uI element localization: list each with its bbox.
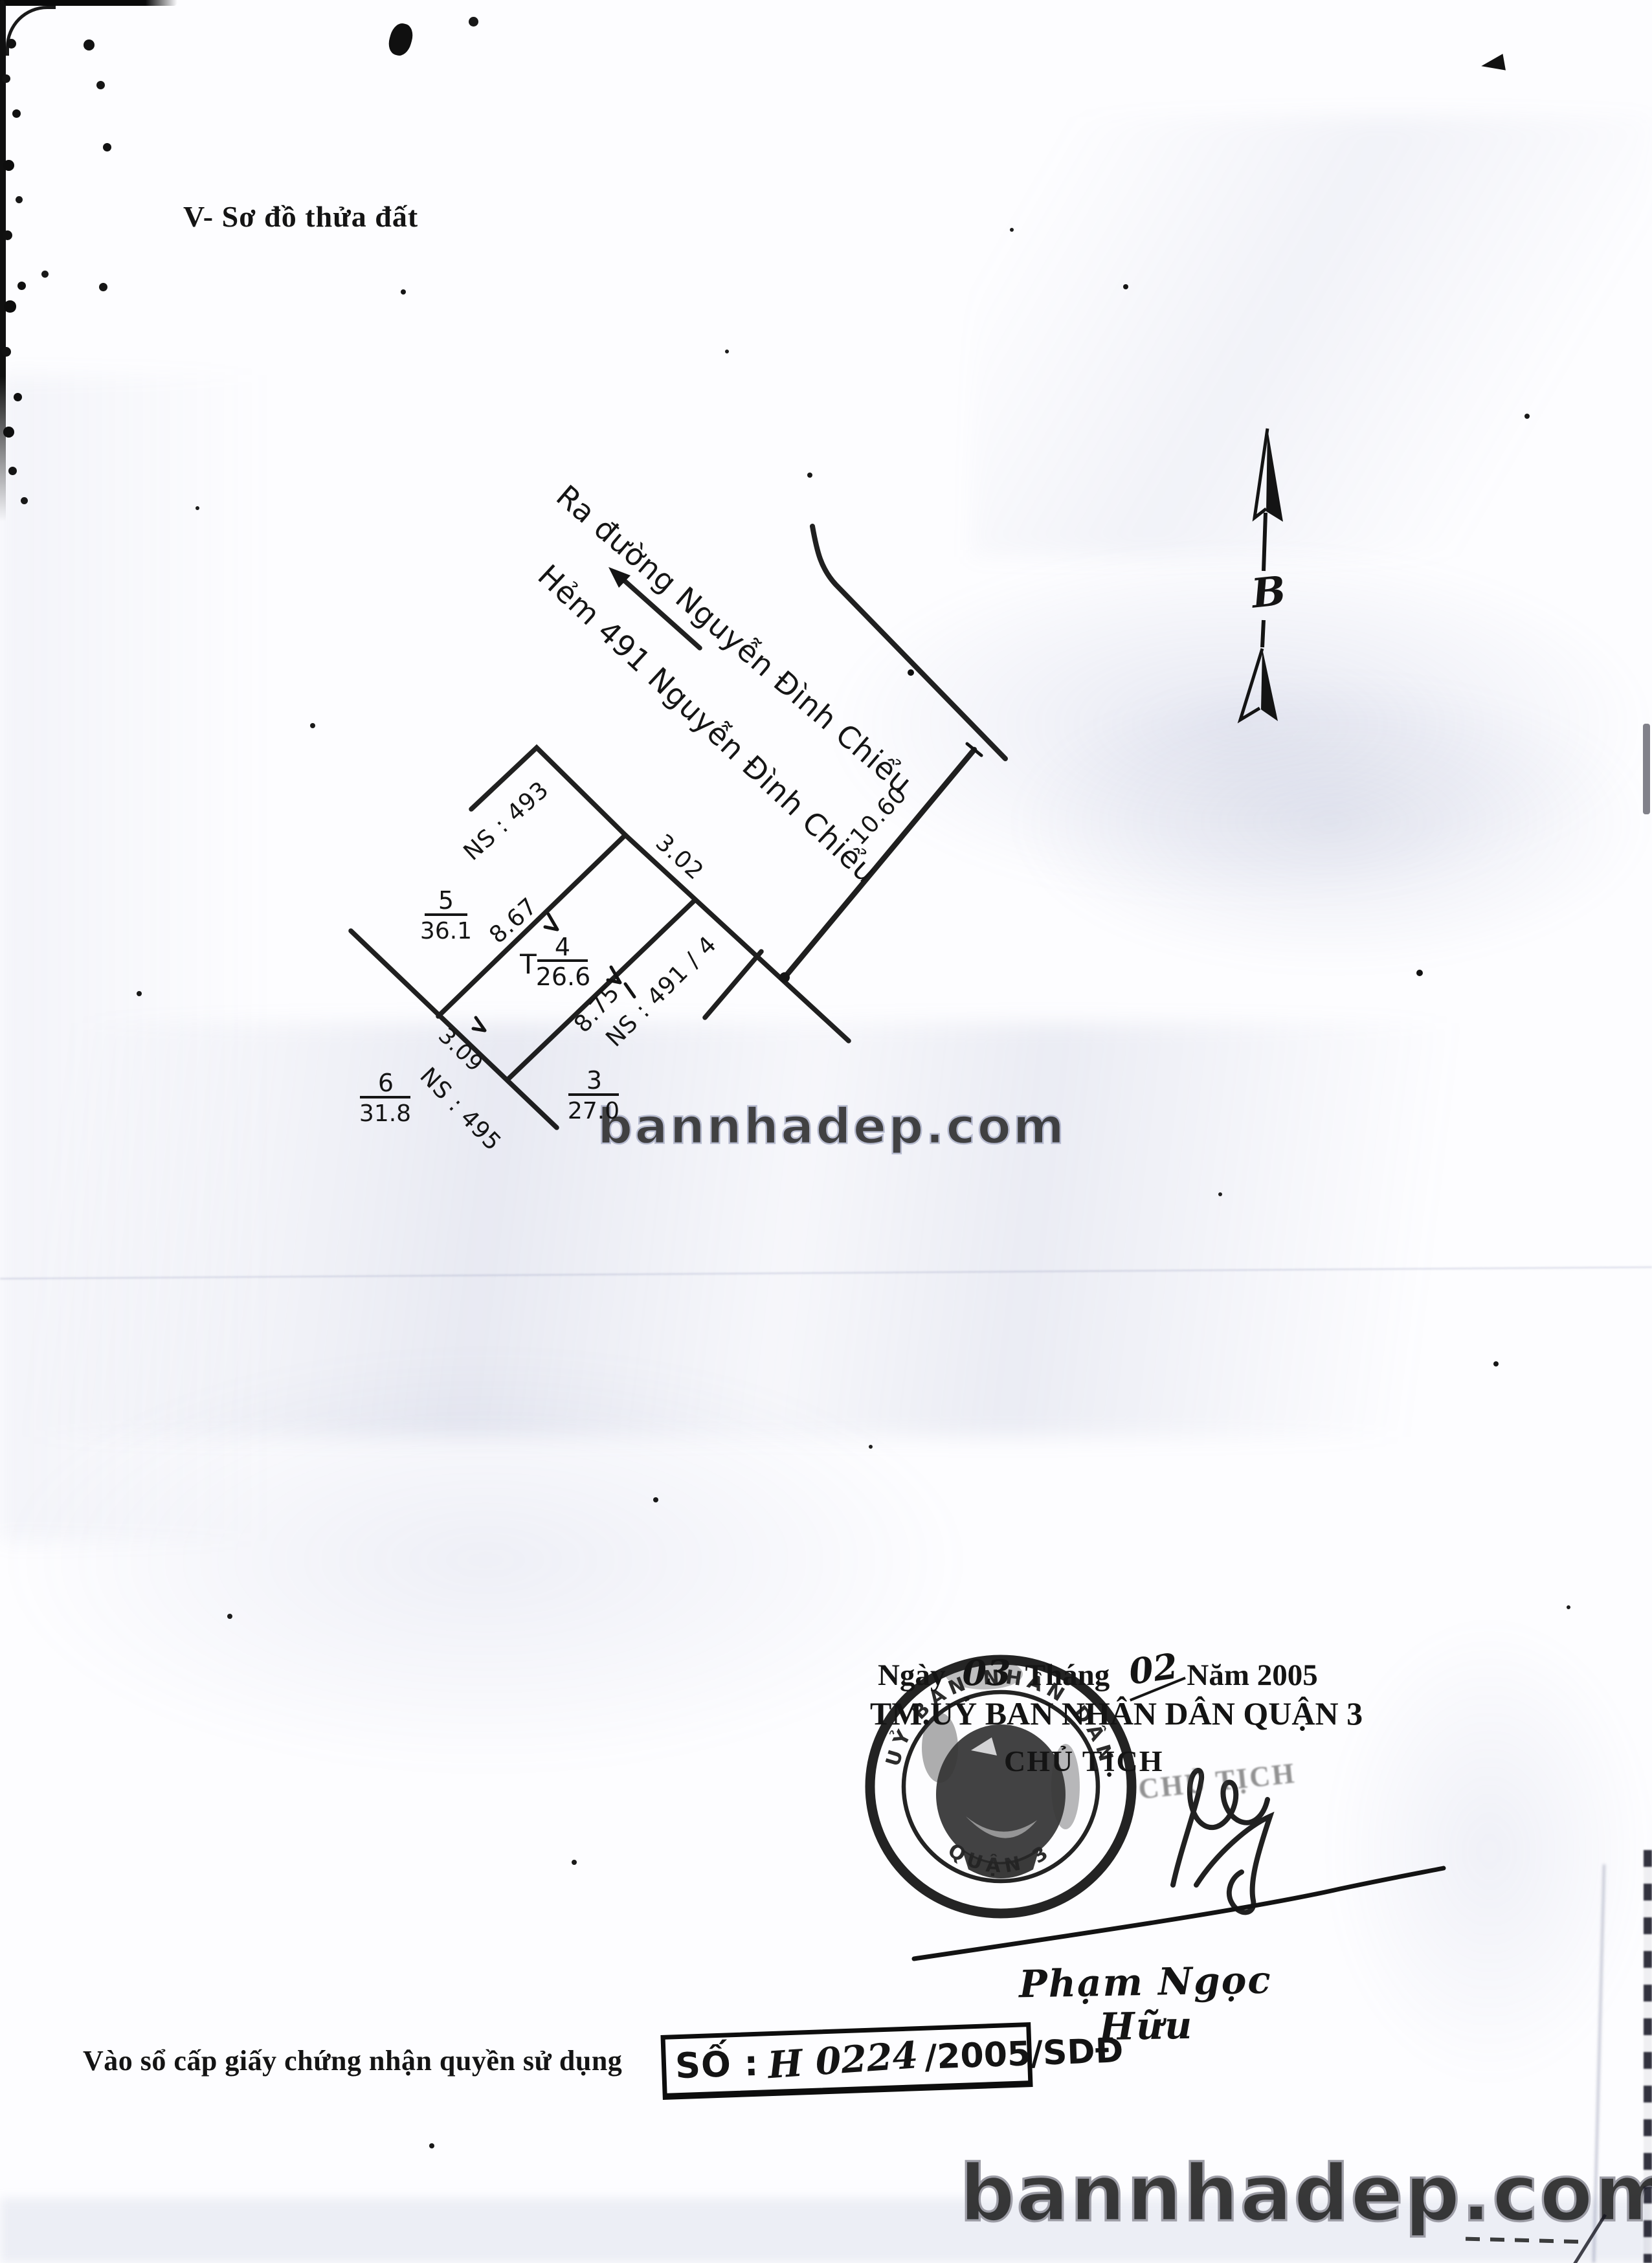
section-title: V- Sơ đồ thửa đất <box>183 199 418 234</box>
date-word-day: Ngày <box>878 1658 945 1693</box>
neighbor-right-label: NS : 491 / 4 <box>601 931 722 1052</box>
date-day-handwritten: 03 <box>962 1652 1010 1693</box>
date-year: Năm 2005 <box>1187 1658 1317 1693</box>
neighbor-bottom-label: NS : 495 <box>414 1063 506 1157</box>
scan-speckles <box>0 0 5 5</box>
svg-text:3: 3 <box>586 1066 602 1095</box>
parcel-6-label: 6 31.8 <box>359 1069 411 1127</box>
scan-edge-mark <box>1644 1850 1652 2263</box>
parcel-4-label: T 4 26.6 <box>519 933 590 991</box>
registry-number-box: SỐ : H 0224 /2005/SDĐ <box>660 2022 1032 2100</box>
dim-3-02: 3.02 <box>651 829 709 886</box>
junction-dot <box>779 972 790 983</box>
registry-number-suffix: /2005/SDĐ <box>924 2031 1124 2077</box>
svg-text:26.6: 26.6 <box>536 963 591 991</box>
parcel-sketch-svg: bannhadep.com <box>0 0 1652 2263</box>
parcel-3-label: 3 27.0 <box>568 1066 619 1124</box>
watermark-text: bannhadep.com <box>597 1097 1066 1155</box>
approval-date-line: Ngày 03 Tháng 02 Năm 2005 <box>878 1652 1370 1693</box>
svg-text:T: T <box>519 948 537 980</box>
registry-number-handwritten: H 0224 <box>766 2033 919 2087</box>
svg-text:4: 4 <box>555 933 570 961</box>
parcel-5-label: 5 36.1 <box>420 886 472 944</box>
svg-text:36.1: 36.1 <box>420 918 472 944</box>
date-month-handwritten: 02 <box>1126 1645 1180 1693</box>
scanned-document-page: V- Sơ đồ thửa đất bannhadep.com <box>0 0 1652 2263</box>
scan-edge-mark <box>0 4 6 522</box>
north-letter: B <box>1248 567 1288 618</box>
watermark-text: bannhadep.com <box>959 2149 1652 2239</box>
scan-edge-mark <box>0 0 177 6</box>
scan-edge-mark <box>1643 724 1650 814</box>
svg-text:6: 6 <box>378 1069 394 1097</box>
registry-label: Vào sổ cấp giấy chứng nhận quyền sử dụng <box>83 2044 622 2077</box>
svg-text:27.0: 27.0 <box>568 1098 619 1124</box>
registry-number-prefix: SỐ : <box>675 2043 759 2086</box>
neighbor-left-label: NS : 493 <box>459 776 554 866</box>
committee-line: TM.UỶ BAN NHÂN DÂN QUẬN 3 <box>870 1695 1363 1732</box>
ink-blob <box>469 17 478 27</box>
svg-text:31.8: 31.8 <box>359 1100 411 1127</box>
date-word-month: Tháng <box>1025 1658 1110 1693</box>
svg-text:5: 5 <box>438 886 454 915</box>
north-arrow: B <box>1240 429 1288 721</box>
